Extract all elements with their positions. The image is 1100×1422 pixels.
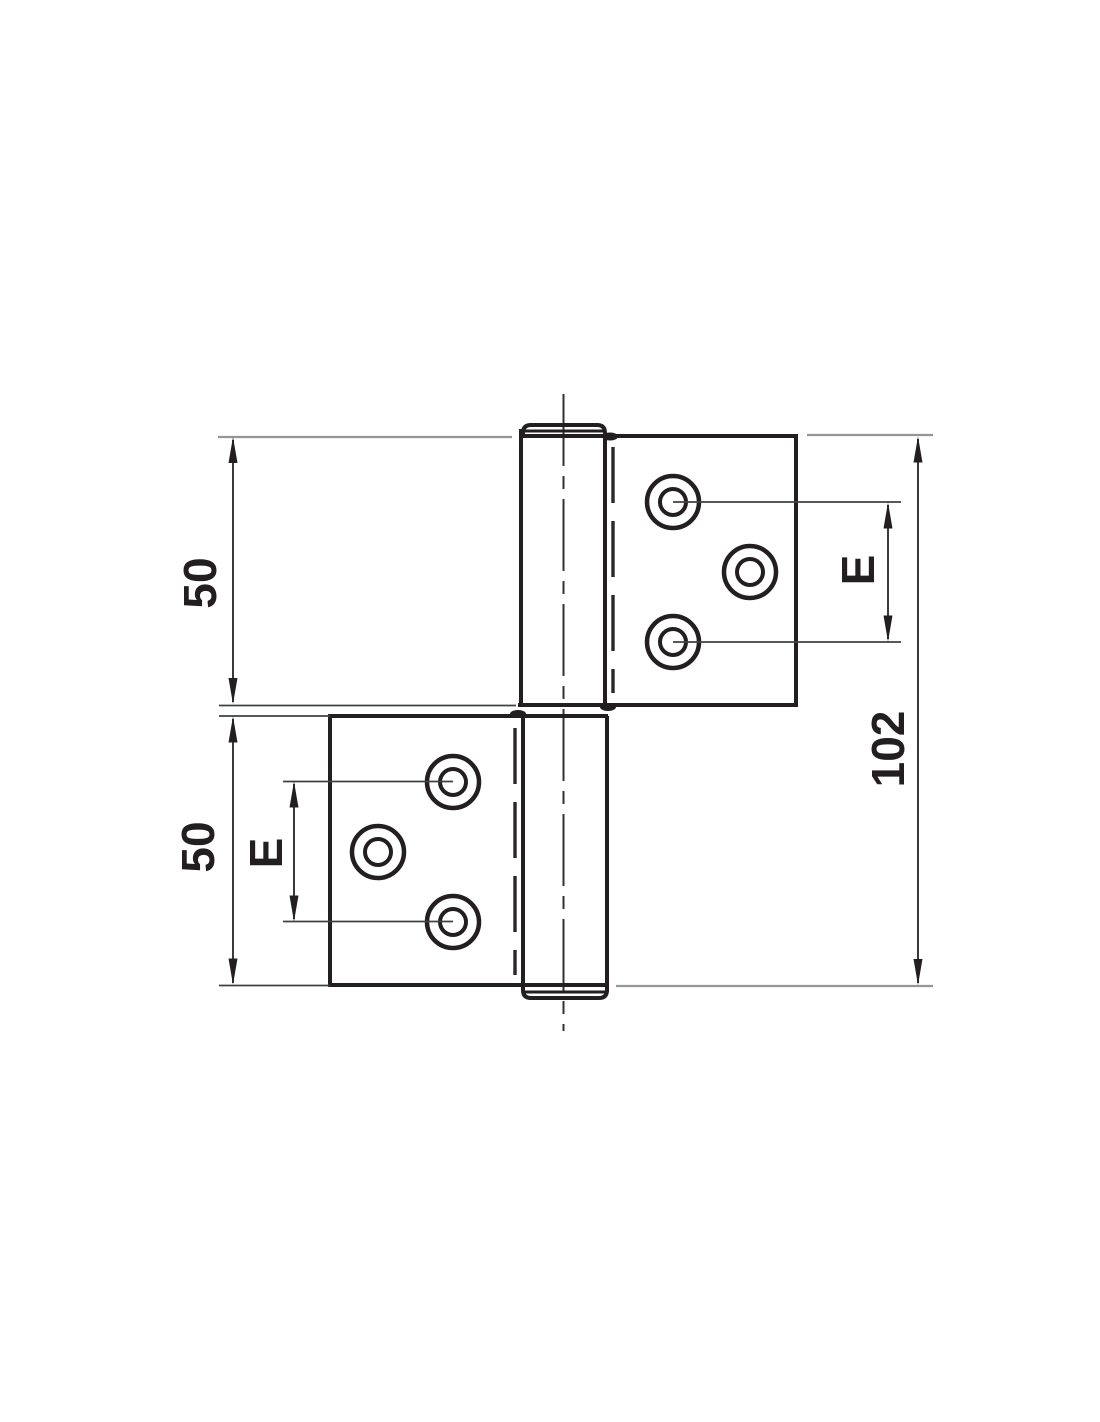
dimension-label-50-bottom: 50 [172, 821, 224, 872]
bottom-leaf [330, 714, 608, 998]
hinge-technical-drawing: 50 50 E E 102 [0, 0, 1100, 1422]
dimension-label-50-top: 50 [174, 557, 226, 608]
joint-dot [510, 710, 526, 718]
dimension-hole-spacing-right: E [832, 503, 892, 642]
top-leaf [518, 425, 796, 707]
dimension-bottom-leaf-height: 50 [172, 717, 237, 985]
joint-dot [600, 703, 616, 711]
joint-dot [602, 433, 618, 441]
dimension-label-102: 102 [862, 711, 914, 788]
dimension-label-E-right: E [832, 555, 884, 586]
dimension-label-E-left: E [240, 838, 292, 869]
screw-hole [724, 546, 776, 598]
dimension-top-leaf-height: 50 [174, 437, 237, 704]
screw-hole [352, 826, 404, 878]
dimension-hole-spacing-left: E [240, 782, 298, 922]
dimension-overall-height: 102 [862, 437, 922, 986]
drawing-svg: 50 50 E E 102 [0, 0, 1100, 1422]
